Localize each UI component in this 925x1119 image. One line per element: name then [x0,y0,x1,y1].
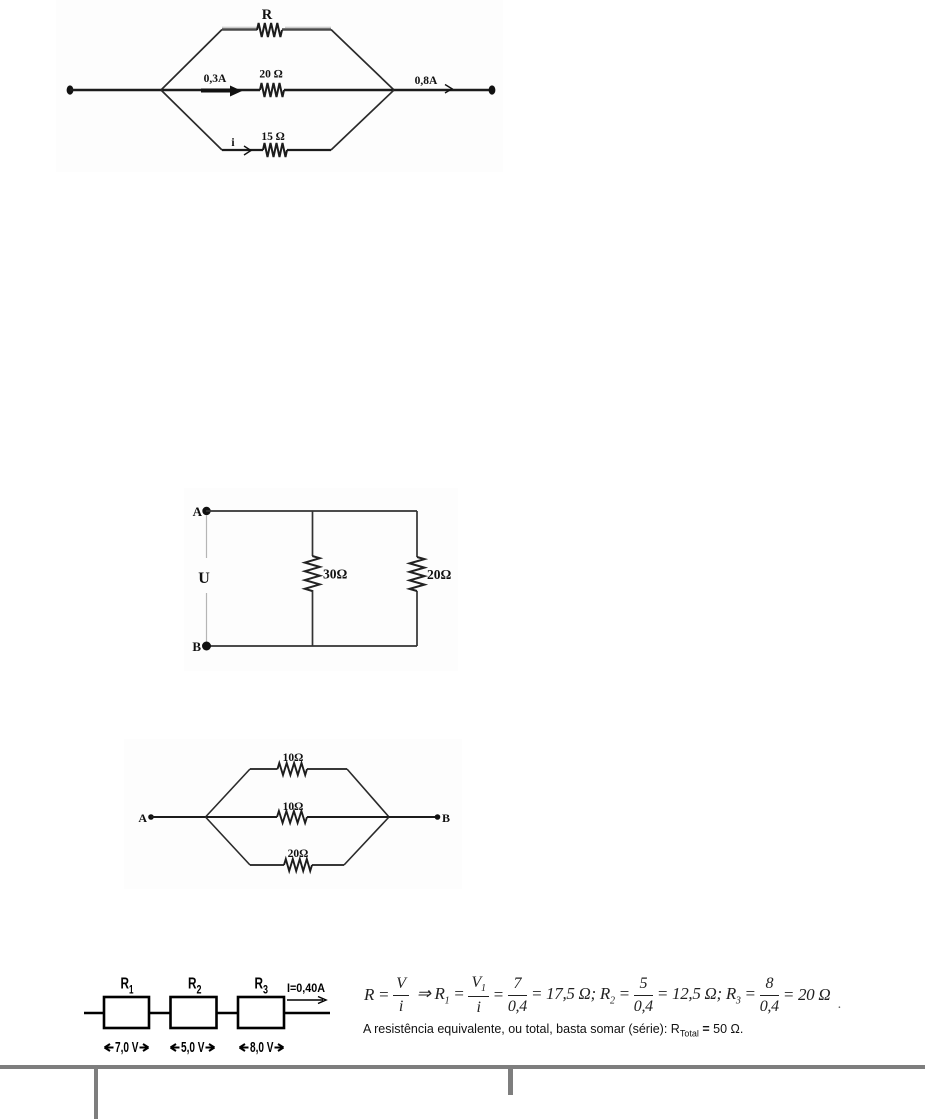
svg-text:R: R [262,7,273,23]
svg-text:A: A [138,811,147,825]
svg-text:0,3A: 0,3A [204,73,227,85]
svg-text:10Ω: 10Ω [283,752,304,764]
svg-text:8,0 V: 8,0 V [250,1040,274,1056]
svg-text:5,0 V: 5,0 V [181,1040,205,1056]
svg-text:7,0 V: 7,0 V [115,1040,139,1056]
svg-text:2: 2 [197,985,202,997]
svg-text:U: U [198,570,210,587]
svg-text:R: R [121,976,130,993]
svg-text:0,8A: 0,8A [415,75,438,87]
svg-text:3: 3 [263,985,268,997]
svg-text:B: B [442,811,450,825]
svg-text:15 Ω: 15 Ω [261,131,284,143]
svg-text:20 Ω: 20 Ω [259,69,282,81]
svg-text:R: R [188,976,197,993]
svg-text:I=0,40A: I=0,40A [287,981,325,995]
svg-text:20Ω: 20Ω [288,848,309,860]
svg-text:30Ω: 30Ω [323,567,348,582]
svg-text:1: 1 [129,985,134,997]
svg-text:10Ω: 10Ω [283,801,304,813]
svg-text:A: A [193,504,203,519]
svg-text:B: B [192,639,201,654]
svg-text:R: R [255,976,264,993]
svg-text:20Ω: 20Ω [427,567,452,582]
